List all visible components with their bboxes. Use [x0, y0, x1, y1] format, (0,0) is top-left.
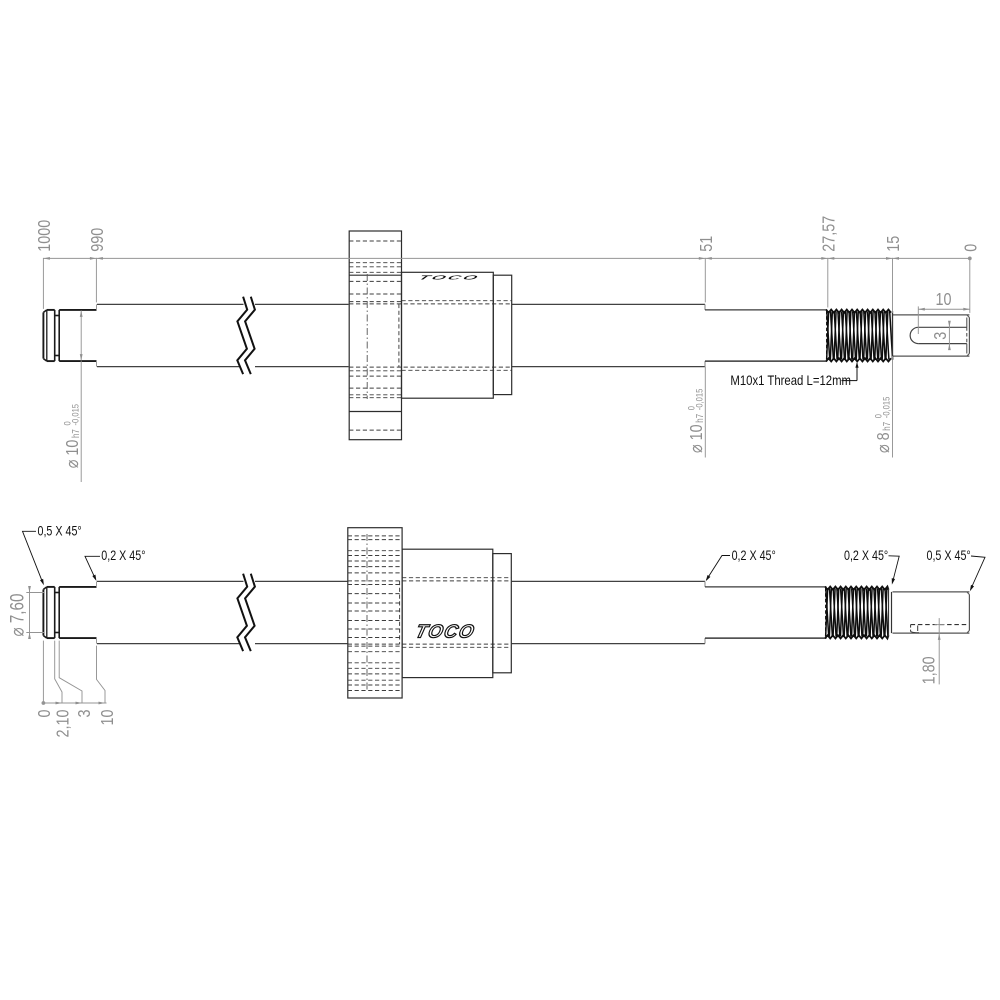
svg-text:0,2 X 45°: 0,2 X 45° — [844, 548, 888, 563]
svg-text:0: 0 — [35, 710, 55, 718]
svg-text:2,10: 2,10 — [53, 710, 73, 738]
svg-text:0: 0 — [961, 244, 981, 252]
svg-text:3: 3 — [74, 710, 94, 718]
svg-text:0,5 X 45°: 0,5 X 45° — [927, 548, 971, 563]
svg-text:1000: 1000 — [35, 220, 55, 252]
svg-text:M10x1 Thread L=12mm: M10x1 Thread L=12mm — [730, 372, 851, 389]
svg-text:0,2 X 45°: 0,2 X 45° — [101, 548, 145, 563]
svg-text:3: 3 — [930, 332, 950, 340]
svg-text:10: 10 — [97, 710, 117, 726]
svg-text:1,80: 1,80 — [919, 656, 939, 684]
svg-text:0,5 X 45°: 0,5 X 45° — [38, 523, 82, 538]
svg-text:TOCO: TOCO — [417, 274, 482, 280]
svg-text:0,2 X 45°: 0,2 X 45° — [732, 548, 776, 563]
svg-text:15: 15 — [884, 236, 904, 252]
svg-text:⌀ 7,60: ⌀ 7,60 — [6, 594, 28, 637]
svg-text:10: 10 — [935, 289, 951, 309]
svg-text:990: 990 — [88, 228, 108, 252]
svg-text:27,57: 27,57 — [819, 216, 839, 252]
svg-text:TOCO: TOCO — [414, 621, 478, 642]
svg-text:51: 51 — [696, 236, 716, 252]
